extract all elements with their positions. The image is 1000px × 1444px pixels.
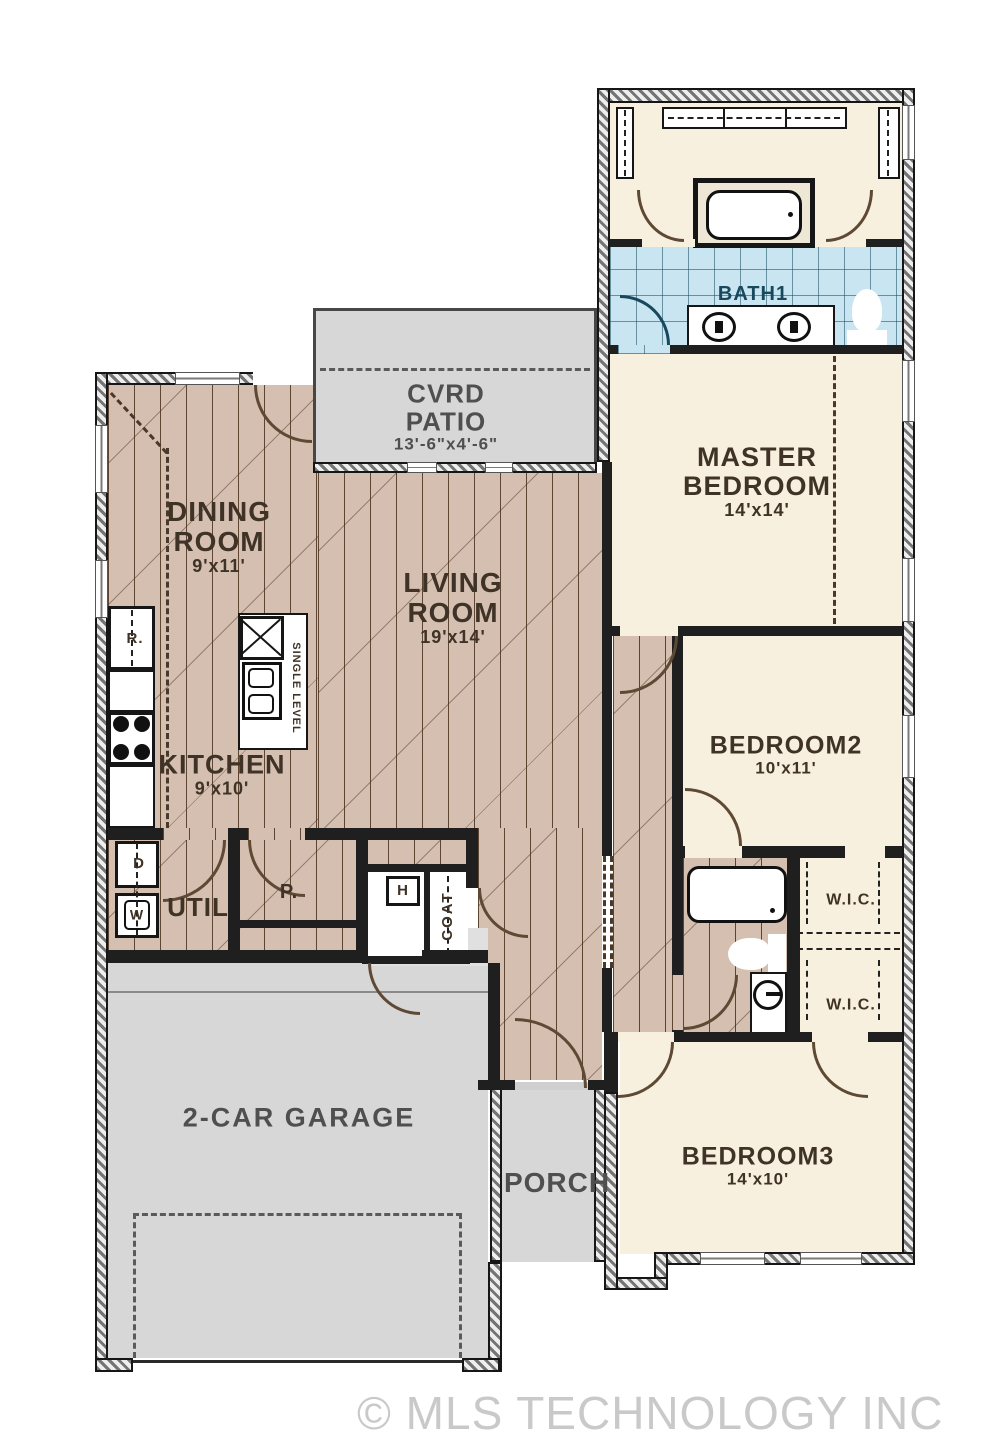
bedroom2-dims: 10'x11' <box>710 759 862 777</box>
wall-garage-east-upper <box>488 963 500 1088</box>
toilet-bath1-icon <box>852 289 882 332</box>
toilet-bath1-tank <box>847 330 887 345</box>
wall-pantry-east <box>356 840 368 952</box>
util-name: UTIL <box>167 892 229 922</box>
wall-west-house <box>95 372 108 1372</box>
window-closet-east <box>902 105 915 160</box>
room-label-porch: PORCH <box>504 1168 610 1198</box>
closet-rod-dash-right <box>887 110 889 176</box>
tub2-drain <box>770 908 775 913</box>
patio-roof-dashed-line <box>320 368 590 371</box>
window-living-north-1 <box>407 462 437 473</box>
wall-pantry-south <box>240 920 356 928</box>
watermark-text: © MLS TECHNOLOGY INC 2026 <box>357 1386 1000 1444</box>
master-name-1: MASTER <box>683 443 831 472</box>
wall-living-hall <box>602 462 612 856</box>
opening-bath2-door <box>672 975 683 1030</box>
opening-bedroom3-door <box>618 1032 674 1042</box>
floor-hall <box>613 636 672 1032</box>
wall-entry-bedroom3 <box>604 1032 618 1092</box>
pantry-name: P. <box>280 881 298 903</box>
garage-step-line <box>108 991 488 993</box>
opening-wic-upper-door <box>845 846 885 858</box>
burner-3 <box>113 744 129 760</box>
island-sink-bowl-1 <box>248 668 274 688</box>
kitchen-dims: 9'x10' <box>159 780 286 799</box>
opening-patio-door <box>253 372 312 385</box>
room-label-util: UTIL <box>167 893 229 921</box>
wall-bedroom2-west <box>672 636 683 858</box>
opening-closet-door-right <box>815 239 866 247</box>
room-label-bedroom3: BEDROOM3 14'x10' <box>682 1143 834 1188</box>
wall-garage-south-stub-right <box>462 1358 500 1372</box>
wall-bath2-wic <box>787 858 800 1032</box>
opening-util-door <box>163 828 228 840</box>
patio-dims: 13'-6"x4'-6" <box>394 436 498 454</box>
window-living-north-2 <box>485 462 513 473</box>
wall-garage-north-left <box>108 950 368 963</box>
bedroom3-dims: 14'x10' <box>682 1170 834 1188</box>
floor-living-room <box>318 473 602 828</box>
wall-garage-east-lower <box>488 1262 502 1372</box>
opening-master-door <box>620 626 678 636</box>
floor-mud-hall <box>362 840 466 864</box>
closet-side-cabinet-right <box>878 107 900 179</box>
garage-door-dashed <box>133 1213 462 1358</box>
cased-opening-dash-1 <box>603 856 606 968</box>
tub-drain <box>788 212 793 217</box>
wall-porch-west <box>490 1088 502 1262</box>
room-label-wic-upper: W.I.C. <box>826 891 876 908</box>
wall-bath1-north-right <box>866 239 902 247</box>
label-water-heater: H <box>397 883 409 899</box>
wic-upper-name: W.I.C. <box>826 891 876 908</box>
refrigerator-letter: R. <box>127 630 144 647</box>
wall-front-door-left <box>478 1080 515 1090</box>
dining-name-1: DINING <box>167 497 271 527</box>
room-label-kitchen: KITCHEN 9'x10' <box>159 751 286 800</box>
opening-wic-lower-door <box>812 1032 868 1042</box>
dryer-letter: D <box>133 855 145 872</box>
bedroom2-name: BEDROOM2 <box>710 732 862 759</box>
label-washer: W <box>130 907 144 922</box>
wic-lower-rod-1 <box>806 960 808 1020</box>
dining-dims: 9'x11' <box>167 558 271 577</box>
cased-opening-dash-2 <box>610 856 613 968</box>
wall-garage-south-stub-left <box>95 1358 133 1372</box>
opening-bath1-door <box>618 345 670 354</box>
faucet-right <box>790 321 798 333</box>
porch-name: PORCH <box>504 1167 610 1198</box>
master-ceiling-dashed-line <box>833 356 836 624</box>
room-label-bath1: BATH1 <box>718 284 788 306</box>
toilet-bath2-tank <box>768 934 786 972</box>
wic-shelf-dash-1 <box>797 932 900 934</box>
master-name-2: BEDROOM <box>683 472 831 501</box>
wall-coat-north <box>362 864 470 872</box>
room-label-garage: 2-CAR GARAGE <box>183 1103 416 1132</box>
living-name-1: LIVING <box>403 568 502 598</box>
toilet-bath2-icon <box>728 938 770 970</box>
coat-name: COAT <box>439 891 456 940</box>
bath1-name: BATH1 <box>718 283 788 305</box>
bedroom3-name: BEDROOM3 <box>682 1143 834 1170</box>
wall-entry-hall <box>602 968 612 1032</box>
burner-1 <box>113 716 129 732</box>
kitchen-counter-2 <box>108 765 155 828</box>
patio-name-1: CVRD <box>394 380 498 408</box>
wall-entry-west <box>466 828 478 888</box>
opening-closet-door-left <box>642 239 695 247</box>
window-dining-west-1 <box>95 425 108 493</box>
room-label-wic-lower: W.I.C. <box>826 996 876 1013</box>
wall-bath1-north-left <box>610 239 644 247</box>
floor-plan-page: BATH1 MASTER BEDROOM 14'x14' CVRD PATIO … <box>0 0 1000 1444</box>
window-bedroom3-south-2 <box>800 1252 862 1265</box>
room-label-pantry: P. <box>280 882 298 904</box>
closet-shelf-dash <box>668 117 840 119</box>
room-label-master-bedroom: MASTER BEDROOM 14'x14' <box>683 443 831 521</box>
master-dims: 14'x14' <box>683 501 831 520</box>
kitchen-name: KITCHEN <box>159 751 286 780</box>
living-name-2: ROOM <box>403 598 502 628</box>
wic-upper-rod-2 <box>878 862 880 924</box>
kitchen-counter-1 <box>108 670 155 712</box>
wic-lower-rod-2 <box>878 960 880 1020</box>
opening-bedroom2-door <box>685 846 742 858</box>
opening-pantry-door <box>248 828 305 840</box>
wall-east <box>902 88 915 1265</box>
living-dims: 19'x14' <box>403 629 502 648</box>
label-island-sink: SINGLE LEVEL <box>289 642 301 733</box>
garage-door-threshold <box>133 1360 462 1363</box>
window-dining-west-2 <box>95 560 108 618</box>
room-label-dining: DINING ROOM 9'x11' <box>167 497 271 577</box>
island-sink-text: SINGLE LEVEL <box>290 642 302 733</box>
closet-rod-dash-left <box>624 110 626 176</box>
label-refrigerator: R. <box>127 631 144 647</box>
wall-north-living <box>313 462 597 473</box>
window-bedroom2-east <box>902 715 915 778</box>
patio-name-2: PATIO <box>394 408 498 436</box>
room-label-living: LIVING ROOM 19'x14' <box>403 568 502 648</box>
window-master-east-1 <box>902 360 915 422</box>
room-label-cvrd-patio: CVRD PATIO 13'-6"x4'-6" <box>394 380 498 455</box>
wall-garage-north-right <box>422 950 488 963</box>
wic-shelf-dash-2 <box>797 948 900 950</box>
faucet-left <box>715 321 723 333</box>
wic-upper-rod-1 <box>806 862 808 924</box>
window-master-east-2 <box>902 558 915 622</box>
island-sink-bowl-2 <box>248 694 274 714</box>
wall-front-door-right <box>588 1080 606 1090</box>
washer-letter: W <box>130 906 144 922</box>
sink2-faucet <box>766 992 782 996</box>
room-label-bedroom2: BEDROOM2 10'x11' <box>710 732 862 777</box>
wall-util-east <box>228 840 240 952</box>
window-bedroom3-south-1 <box>700 1252 765 1265</box>
water-heater-name: H <box>397 882 409 899</box>
label-dryer: D <box>133 856 145 872</box>
wall-west-master-wing <box>597 88 610 462</box>
bathtub2-icon <box>687 866 787 923</box>
wall-coat-divider <box>424 872 430 956</box>
room-label-coat: COAT <box>440 891 456 940</box>
wic-lower-name: W.I.C. <box>826 996 876 1013</box>
wall-north-master-wing <box>597 88 915 103</box>
window-dining-north <box>175 372 240 385</box>
burner-4 <box>134 744 150 760</box>
dining-name-2: ROOM <box>167 527 271 557</box>
burner-2 <box>134 716 150 732</box>
garage-name: 2-CAR GARAGE <box>183 1102 416 1132</box>
